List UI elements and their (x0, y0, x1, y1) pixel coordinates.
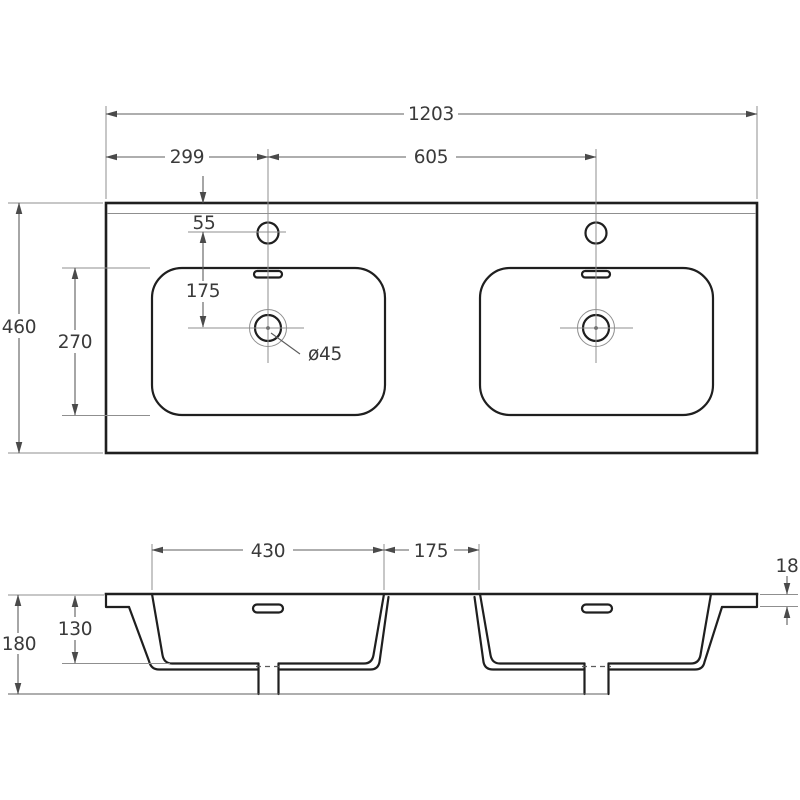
dim-basin-opening-width: 430 (152, 541, 384, 590)
dim-text: 1203 (408, 104, 454, 125)
dim-basin-front-to-back: 270 (58, 268, 150, 416)
dim-text: 299 (170, 147, 204, 168)
dim-overall-height: 180 (2, 595, 104, 694)
dim-text: 130 (58, 619, 92, 640)
dim-text: 175 (414, 541, 448, 562)
right-drain-stub (582, 664, 611, 695)
section-left-rim (106, 594, 129, 607)
dim-faucet-from-left: 299 (106, 147, 268, 168)
left-basin-inner-wall (152, 594, 259, 664)
dim-text: 605 (414, 147, 448, 168)
double-washbasin-dimension-drawing: ø45 1203 299 605 55 (0, 0, 800, 800)
left-basin-outer-wall (129, 607, 259, 670)
drain-diameter-label: ø45 (308, 344, 342, 365)
dim-text: 175 (186, 281, 220, 302)
left-basin-inner-wall-right (279, 594, 385, 664)
section-right-rim (722, 594, 757, 607)
drain-diameter-leader (271, 333, 300, 354)
right-drain (560, 149, 633, 363)
right-basin-inner-wall-right (609, 594, 712, 664)
dim-text: 55 (193, 213, 216, 234)
dim-text: 180 (2, 634, 36, 655)
section-view: 430 175 18 130 180 (2, 541, 799, 694)
dim-rim-height: 18 (760, 556, 798, 625)
dim-text: 460 (2, 317, 36, 338)
top-view: ø45 1203 299 605 55 (2, 104, 757, 453)
left-overflow-slot-section (253, 605, 283, 613)
dim-text: 270 (58, 332, 92, 353)
dim-faucet-to-drain: 175 (186, 232, 220, 327)
right-overflow-slot-section (582, 605, 612, 613)
right-basin-outer-wall-right (609, 607, 723, 670)
dim-between-basins: 175 (384, 541, 479, 590)
left-drain (188, 149, 304, 363)
right-basin-inner-wall (480, 594, 585, 664)
dim-faucet-from-back-edge: 55 (188, 176, 286, 234)
dim-text: 430 (251, 541, 285, 562)
dim-text: 18 (776, 556, 799, 577)
technical-drawing-page: ø45 1203 299 605 55 (0, 0, 800, 800)
dim-faucet-spacing: 605 (268, 147, 596, 168)
left-drain-stub (256, 664, 281, 695)
